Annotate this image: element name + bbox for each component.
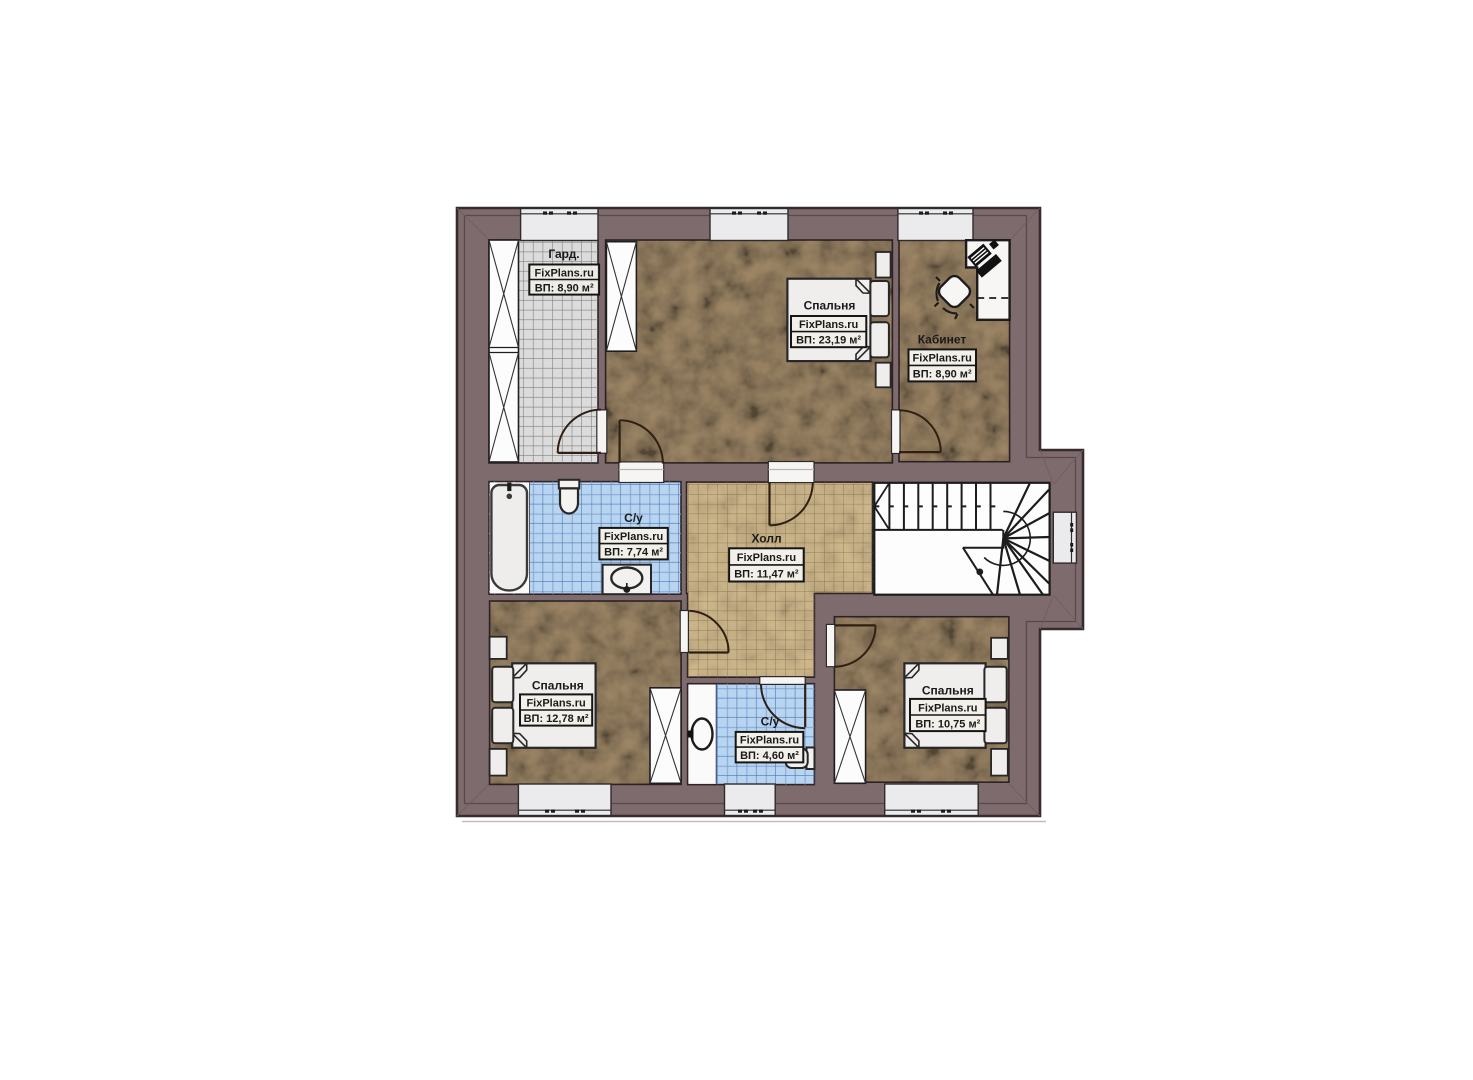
svg-text:FixPlans.ru: FixPlans.ru — [526, 697, 585, 709]
svg-text:Спальня: Спальня — [804, 299, 856, 313]
svg-text:FixPlans.ru: FixPlans.ru — [799, 319, 858, 331]
svg-text:ВП: 8,90 м²: ВП: 8,90 м² — [535, 283, 594, 295]
svg-text:ВП: 12,78 м²: ВП: 12,78 м² — [524, 713, 589, 725]
svg-text:С/у: С/у — [624, 511, 643, 525]
svg-text:С/у: С/у — [761, 715, 780, 729]
svg-text:Кабинет: Кабинет — [918, 333, 967, 347]
svg-text:Гард.: Гард. — [548, 247, 579, 261]
svg-text:FixPlans.ru: FixPlans.ru — [913, 353, 972, 365]
svg-text:FixPlans.ru: FixPlans.ru — [740, 735, 799, 747]
svg-text:ВП: 11,47 м²: ВП: 11,47 м² — [734, 569, 799, 581]
svg-text:ВП: 7,74 м²: ВП: 7,74 м² — [604, 547, 663, 559]
svg-text:FixPlans.ru: FixPlans.ru — [737, 552, 796, 564]
svg-text:FixPlans.ru: FixPlans.ru — [535, 268, 594, 280]
svg-text:Спальня: Спальня — [922, 684, 974, 698]
svg-text:ВП: 23,19 м²: ВП: 23,19 м² — [796, 335, 861, 347]
svg-text:Спальня: Спальня — [532, 679, 584, 693]
svg-text:ВП: 10,75 м²: ВП: 10,75 м² — [915, 718, 980, 730]
svg-text:ВП: 4,60 м²: ВП: 4,60 м² — [740, 750, 799, 762]
svg-text:FixPlans.ru: FixPlans.ru — [918, 702, 977, 714]
svg-text:Холл: Холл — [751, 532, 781, 546]
svg-text:FixPlans.ru: FixPlans.ru — [604, 531, 663, 543]
svg-text:ВП: 8,90 м²: ВП: 8,90 м² — [913, 369, 972, 381]
